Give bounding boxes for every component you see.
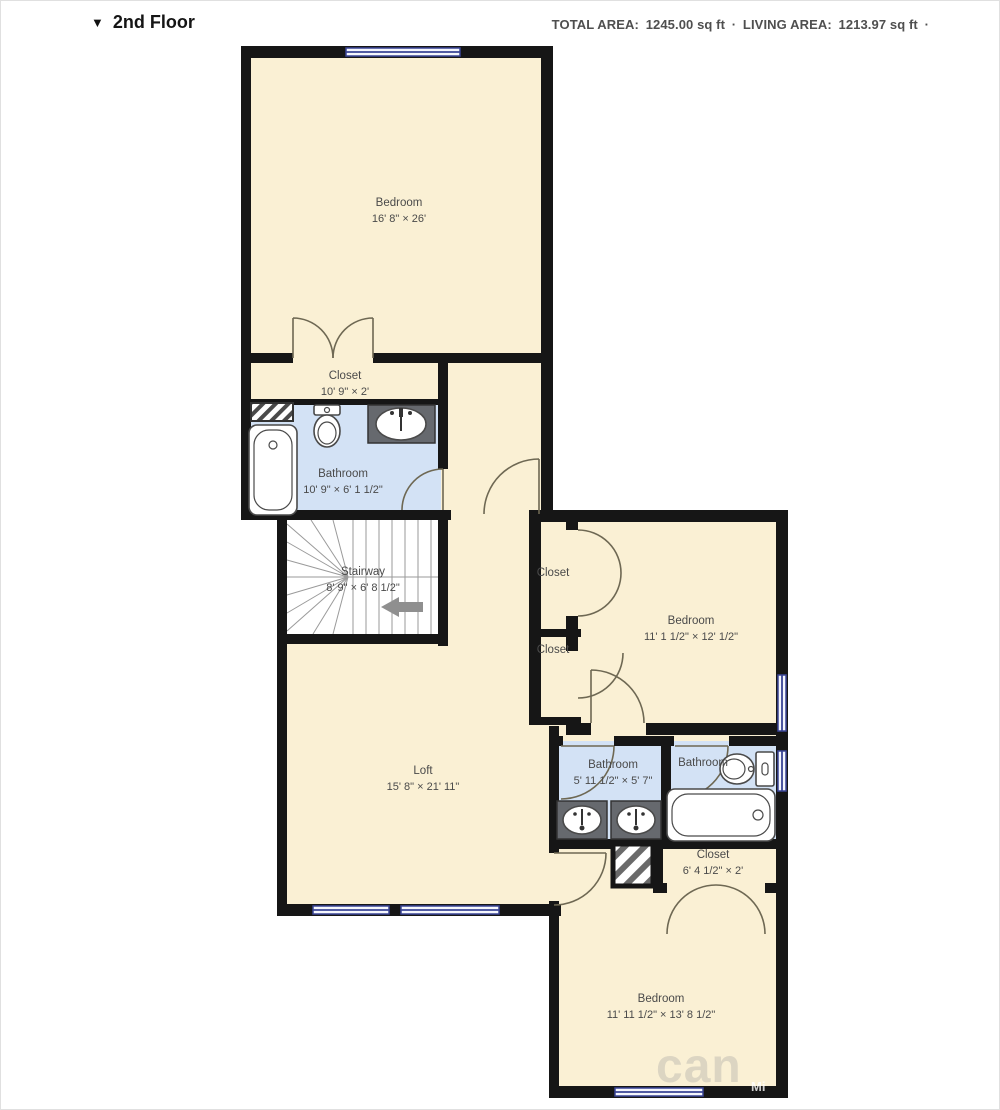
room-label-bedroom-main: Bedroom 16' 8" × 26' — [372, 196, 426, 226]
sink-vanity-icon — [557, 801, 607, 839]
floor-plan — [1, 1, 1000, 1110]
bathtub-icon — [667, 789, 775, 841]
sink-vanity-icon — [368, 405, 435, 443]
room-label-stairway: Stairway 8' 9" × 6' 8 1/2" — [326, 565, 399, 595]
room-label-closet-rear: Closet 6' 4 1/2" × 2' — [683, 848, 743, 878]
room-label-bedroom-right: Bedroom 11' 1 1/2" × 12' 1/2" — [644, 614, 738, 644]
toilet-icon — [720, 752, 774, 786]
room-label-bathroom-ensuite: Bathroom — [678, 756, 728, 772]
window — [778, 675, 786, 731]
room-label-closet-hall-lower: Closet — [537, 643, 570, 659]
bathtub-icon — [249, 425, 297, 515]
hatch-shelf — [251, 403, 293, 421]
room-label-bathroom-main: Bathroom 10' 9" × 6' 1 1/2" — [303, 467, 383, 497]
room-label-bedroom-rear: Bedroom 11' 11 1/2" × 13' 8 1/2" — [607, 992, 716, 1022]
window — [401, 906, 499, 914]
sink-vanity-icon — [611, 801, 661, 839]
toilet-icon — [314, 405, 340, 447]
hatch-chase — [613, 844, 653, 886]
window — [346, 48, 460, 56]
watermark-logo: can — [656, 1039, 742, 1094]
window — [778, 751, 786, 791]
room-label-loft: Loft 15' 8" × 21' 11" — [387, 764, 460, 794]
room-label-closet-hall-upper: Closet — [537, 566, 570, 582]
window — [313, 906, 389, 914]
room-label-closet-main: Closet 10' 9" × 2' — [321, 369, 369, 399]
floorplan-screen: ▼ 2nd Floor TOTAL AREA: 1245.00 sq ft · … — [0, 0, 1000, 1110]
watermark-wall-text: Mi — [751, 1079, 765, 1094]
room-label-bathroom-hall: Bathroom 5' 11 1/2" × 5' 7" — [574, 758, 653, 788]
